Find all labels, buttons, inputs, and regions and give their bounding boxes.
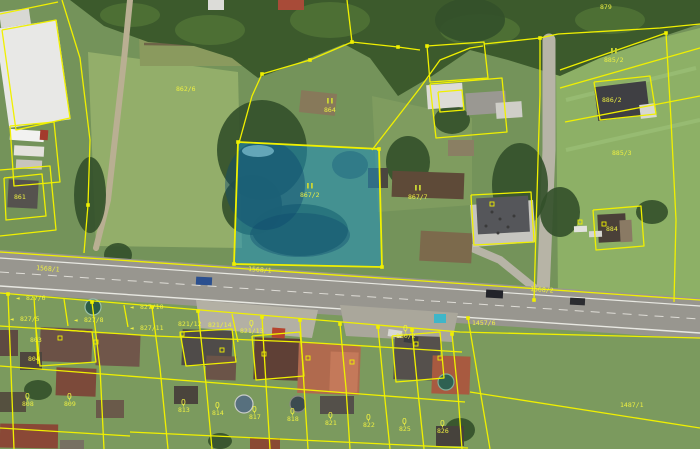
parcel-label-group: 886/2 xyxy=(602,96,622,104)
building xyxy=(392,171,465,199)
parcel-label: 814 xyxy=(212,409,224,417)
vehicle xyxy=(196,277,212,286)
vehicle xyxy=(486,290,503,299)
tilled-soil-patch xyxy=(448,140,474,156)
meadow-symbol xyxy=(307,183,309,189)
boundary-vertex xyxy=(425,44,429,48)
parcel-label: 830/2 xyxy=(396,332,416,340)
parcel-label-group: 821/14 xyxy=(208,321,232,329)
parcel-label: 804 xyxy=(28,355,40,363)
pool xyxy=(235,395,253,413)
boundary-vertex xyxy=(338,322,342,326)
parcel-label-group: 803 xyxy=(30,336,42,344)
building xyxy=(250,438,280,449)
person-dot xyxy=(499,218,502,221)
vehicle xyxy=(40,130,49,141)
parcel-label: 862/6 xyxy=(176,85,196,93)
parcel-label-group: 884 xyxy=(606,225,618,233)
building xyxy=(206,355,237,380)
parcel-label: 809 xyxy=(64,400,76,408)
person-dot xyxy=(491,211,494,214)
parcel-label: 813 xyxy=(178,406,190,414)
vehicle xyxy=(570,298,585,306)
person-dot xyxy=(507,226,510,229)
parcel-label: 826 xyxy=(437,427,449,435)
building xyxy=(434,314,446,323)
tree-canopy xyxy=(175,15,245,45)
boundary-vertex xyxy=(380,265,384,269)
parcel-label: ◄ xyxy=(10,316,14,323)
tree-cluster xyxy=(435,0,505,42)
parcel-label: 879 xyxy=(600,3,612,11)
parcel-label: 827/6 xyxy=(26,294,46,302)
boundary-vertex xyxy=(538,36,542,40)
parcel-label-group: 862/6 xyxy=(176,85,196,93)
parcel-label: 827/10 xyxy=(140,303,164,311)
boundary-vertex xyxy=(532,298,536,302)
boundary-vertex xyxy=(6,292,10,296)
boundary-vertex xyxy=(664,31,668,35)
parcel-label: 1568/1 xyxy=(248,265,272,275)
boundary-vertex xyxy=(90,300,94,304)
parcel-label-group: 885/3 xyxy=(612,149,632,157)
parcel-label: 822 xyxy=(363,421,375,429)
boundary-vertex xyxy=(86,203,90,207)
parcel-label: ◄ xyxy=(130,325,134,332)
boundary-vertex xyxy=(298,318,302,322)
building xyxy=(174,386,198,404)
boundary-vertex xyxy=(232,262,236,266)
pool xyxy=(438,374,454,390)
parcel-label: 821 xyxy=(325,419,337,427)
boundary-vertex xyxy=(396,45,400,49)
parcel-label: 864 xyxy=(324,106,336,114)
boundary-vertex xyxy=(350,40,354,44)
parcel-label: ◄ xyxy=(16,295,20,302)
vehicle xyxy=(14,145,44,157)
parcel-label: 884 xyxy=(606,225,618,233)
meadow-symbol xyxy=(327,98,329,104)
parcel-label-group: 1487/1 xyxy=(620,401,644,409)
boundary-vertex xyxy=(377,147,381,151)
building xyxy=(253,337,300,381)
parcel-label: 885/2 xyxy=(604,56,624,64)
parcel-label: 821/12 xyxy=(178,320,202,328)
building xyxy=(495,101,522,119)
highlight-texture xyxy=(332,151,368,179)
boundary-vertex xyxy=(450,332,454,336)
building xyxy=(95,333,140,367)
vehicle xyxy=(574,226,587,232)
person-dot xyxy=(485,225,488,228)
meadow-symbol xyxy=(611,48,613,54)
parcel-label: 817 xyxy=(249,413,261,421)
building xyxy=(208,0,224,10)
meadow-symbol xyxy=(615,48,617,54)
parcel-label: 885/3 xyxy=(612,149,632,157)
parcel-label-group: 1568/1 xyxy=(36,264,60,274)
person-dot xyxy=(513,215,516,218)
person-dot xyxy=(497,232,500,235)
parcel-label: 825 xyxy=(399,425,411,433)
meadow-symbol xyxy=(419,185,421,191)
parcel-label: 818 xyxy=(287,415,299,423)
parcel-label: 1568/1 xyxy=(36,264,60,274)
tilled-soil-patch xyxy=(419,231,472,264)
boundary-vertex xyxy=(196,309,200,313)
boundary-vertex xyxy=(260,72,264,76)
meadow-symbol xyxy=(415,185,417,191)
parcel-label: 808 xyxy=(22,400,34,408)
parcel-label: 821/14 xyxy=(208,321,232,329)
boundary-vertex xyxy=(308,58,312,62)
parcel-label-group: 1457/6 xyxy=(472,319,496,327)
tree-cluster xyxy=(540,187,580,237)
aerial-map-canvas[interactable]: 879885/2886/2885/3884862/6864867/2867/78… xyxy=(0,0,700,449)
parcel-label-group: 821/12 xyxy=(178,320,202,328)
building xyxy=(476,196,530,235)
parcel-label: 886/2 xyxy=(602,96,622,104)
tree-cluster xyxy=(74,157,106,233)
parcel-label: 827/11 xyxy=(140,324,164,332)
parcel-label-group: 1568/1 xyxy=(248,265,272,275)
building xyxy=(278,0,304,10)
building xyxy=(39,327,92,363)
building xyxy=(619,220,632,243)
parcel-label: ◄ xyxy=(130,304,134,311)
parcel-label: 803 xyxy=(30,336,42,344)
boundary-vertex xyxy=(466,316,470,320)
parcel-label: ◄ xyxy=(74,317,78,324)
parcel-label: 827/8 xyxy=(84,316,104,324)
parcel-label: 867/2 xyxy=(300,191,320,199)
parcel-label-group: 879 xyxy=(600,3,612,11)
boundary-vertex xyxy=(260,315,264,319)
parcel-label: 821/13 xyxy=(240,327,264,335)
meadow-symbol xyxy=(331,98,333,104)
meadow-symbol xyxy=(311,183,313,189)
boundary-vertex xyxy=(376,325,380,329)
parcel-label: 827/5 xyxy=(20,315,40,323)
parcel-label-group: 1568/2 xyxy=(530,285,554,295)
building xyxy=(96,400,124,418)
parcel-label: 1568/2 xyxy=(530,285,554,295)
highlight-texture xyxy=(242,145,274,157)
parcel-label: 1487/1 xyxy=(620,401,644,409)
building xyxy=(320,396,354,414)
parcel-label: 1457/6 xyxy=(472,319,496,327)
parcel-label-group: 861 xyxy=(14,193,26,201)
parcel-label: 861 xyxy=(14,193,26,201)
highlight-texture xyxy=(250,213,350,257)
parcel-label-group: 804 xyxy=(28,355,40,363)
building xyxy=(60,440,84,449)
parcel-label: 867/7 xyxy=(408,193,428,201)
building xyxy=(0,423,58,448)
boundary-vertex xyxy=(236,140,240,144)
cadastral-map-viewport[interactable]: 879885/2886/2885/3884862/6864867/2867/78… xyxy=(0,0,700,449)
